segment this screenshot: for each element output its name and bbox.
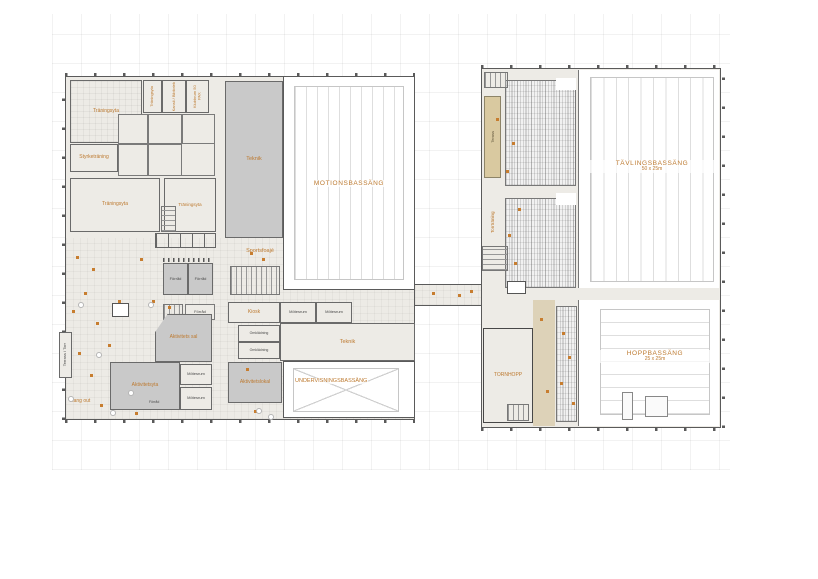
tick-row-east-top <box>481 65 721 68</box>
grandstand-vomitory <box>556 78 576 90</box>
locker-comb <box>163 258 213 262</box>
stairs-east-top <box>484 72 508 88</box>
grandstand-south <box>556 306 577 422</box>
room-omkladning-b: Omklädning <box>238 342 280 359</box>
grandstand-north-a <box>505 80 576 186</box>
competition-pool <box>590 77 714 282</box>
room-label: Förråd <box>195 277 207 281</box>
room-label: Kiosk <box>248 310 260 316</box>
room-label: Aktivitets sal <box>170 335 198 341</box>
service-room <box>182 114 215 144</box>
stairs-east-mid <box>482 246 508 271</box>
room-label: Omklädning <box>250 349 269 353</box>
room-label: Klubbrum 50 PAX <box>193 81 202 112</box>
teaching-pool: UNDERVISNINGSBASSÄNG <box>293 368 399 412</box>
room-label: Aktivitetslokal <box>240 380 270 386</box>
tick-row-west-bottom <box>65 420 415 423</box>
room-label: Teknik <box>340 339 356 345</box>
grandstand-north-b <box>505 198 576 288</box>
room-label: Aktivitetsyta <box>132 383 159 389</box>
competition-pool-label-wrap: TÄVLINGSBASSÄNG 50 x 25m <box>590 160 714 173</box>
room-traningsyta-w: Träningsyta <box>70 178 160 232</box>
grandstand-vomitory <box>556 193 576 205</box>
room-omkladning-a: Omklädning <box>238 325 280 342</box>
room-label: Mötesrum <box>187 396 205 400</box>
room-forrad-b: Förråd <box>188 263 213 295</box>
area-label: Torrträning <box>487 195 498 250</box>
motion-pool-label-wrap: MOTIONSBASSÄNG <box>283 172 415 190</box>
room-label: Mötesrum <box>187 372 205 376</box>
room-label: Mötesrum <box>289 310 307 314</box>
room-label: Förråd <box>194 310 206 314</box>
room-label: Mötesrum <box>325 310 343 314</box>
pool-equipment <box>622 392 633 420</box>
room-aktivitets-sal: Aktivitets sal <box>155 314 212 362</box>
tick-row-east-bottom <box>481 428 721 431</box>
room-aktivitetslokal: Aktivitetslokal <box>228 362 282 403</box>
room-aktivitetsyta: Aktivitetsyta Förråd <box>110 362 180 410</box>
room-label: TORNHOPP <box>494 373 522 379</box>
room-label-forrad: Förråd <box>149 401 159 405</box>
service-room <box>118 144 148 176</box>
room-traningsyta-top: Träningsyta <box>143 80 162 113</box>
room-label: Träningsyta <box>150 86 155 107</box>
room-motesrum-d: Mötesrum <box>180 387 212 410</box>
service-room <box>118 114 148 144</box>
stairs-west <box>161 206 176 232</box>
room-motesrum-b: Mötesrum <box>316 302 352 323</box>
connector-corridor <box>415 284 481 306</box>
pool-dimension: 50 x 25m <box>590 167 714 173</box>
room-label: Omklädning <box>250 332 269 336</box>
room-styrketraning: Styrketräning <box>70 144 118 172</box>
elevator-east <box>507 281 526 294</box>
tick-col-east-right <box>722 68 725 428</box>
room-motesrum-a: Mötesrum <box>280 302 316 323</box>
room-label: Teknik <box>246 156 262 162</box>
area-label: Terrass / Torr <box>63 343 68 366</box>
elevator-west <box>112 303 129 317</box>
area-label: Terass <box>490 131 495 143</box>
room-label: Styrketräning <box>79 155 108 161</box>
pool-equipment <box>645 396 668 417</box>
terrace-block: Terass <box>484 96 501 178</box>
service-room <box>148 144 182 176</box>
room-teknik-south: Teknik <box>280 323 415 361</box>
diving-pool-label-wrap: HOPPBASSÄNG 25 x 25m <box>600 350 710 363</box>
room-motesrum-c: Mötesrum <box>180 364 212 385</box>
room-label: Träningsyta <box>178 202 201 207</box>
room-label: Träningsyta <box>102 202 128 208</box>
pool-dimension: 25 x 25m <box>600 357 710 363</box>
room-label: Förråd <box>170 277 182 281</box>
service-room <box>148 114 182 144</box>
sportsfoaje-label-wrap: Sportsfoajé <box>225 239 295 257</box>
stairs-tornhopp <box>507 404 529 421</box>
area-label: Sportsfoajé <box>246 248 274 254</box>
room-label: Kansli / Bibliotek <box>172 82 177 111</box>
room-forrad-a: Förråd <box>163 263 188 295</box>
hangout-label-wrap: Hang out <box>70 389 114 407</box>
room-kansli-bibliotek: Kansli / Bibliotek <box>162 80 186 113</box>
terrace-strip-south <box>533 300 555 426</box>
room-kiosk: Kiosk <box>228 302 280 323</box>
room-klubbrum: Klubbrum 50 PAX <box>186 80 209 113</box>
stairs-main <box>230 266 280 295</box>
storage-cells-row <box>155 233 216 248</box>
room-label: Träningsyta <box>93 109 119 115</box>
floor-plan-canvas: Träningsyta Träningsyta Kansli / Bibliot… <box>0 0 818 579</box>
area-label: Hang out <box>70 398 90 404</box>
pool-label: MOTIONSBASSÄNG <box>312 180 386 187</box>
pool-label: UNDERVISNINGSBASSÄNG <box>294 378 368 384</box>
room-teknik-north: Teknik <box>225 81 283 238</box>
dry-training-label-wrap: Torrträning <box>487 195 498 250</box>
terrace-entry-box: Terrass / Torr <box>59 332 72 378</box>
